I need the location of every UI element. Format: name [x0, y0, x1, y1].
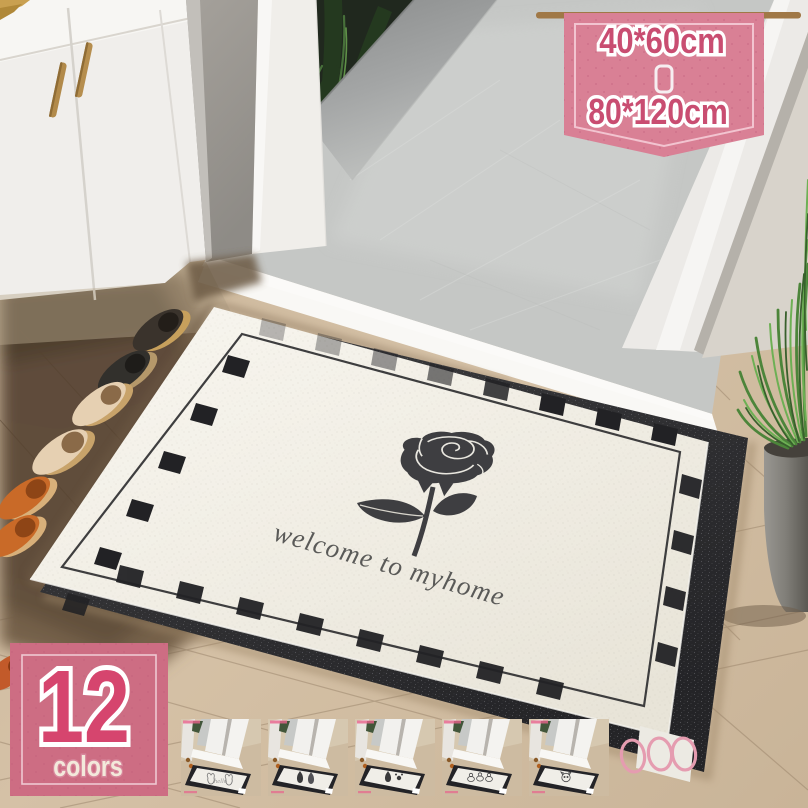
svg-text:colors: colors — [53, 749, 123, 782]
svg-text:12: 12 — [38, 649, 130, 764]
svg-text:40*60cm: 40*60cm — [599, 22, 725, 62]
svg-text:80*120cm: 80*120cm — [588, 93, 728, 133]
